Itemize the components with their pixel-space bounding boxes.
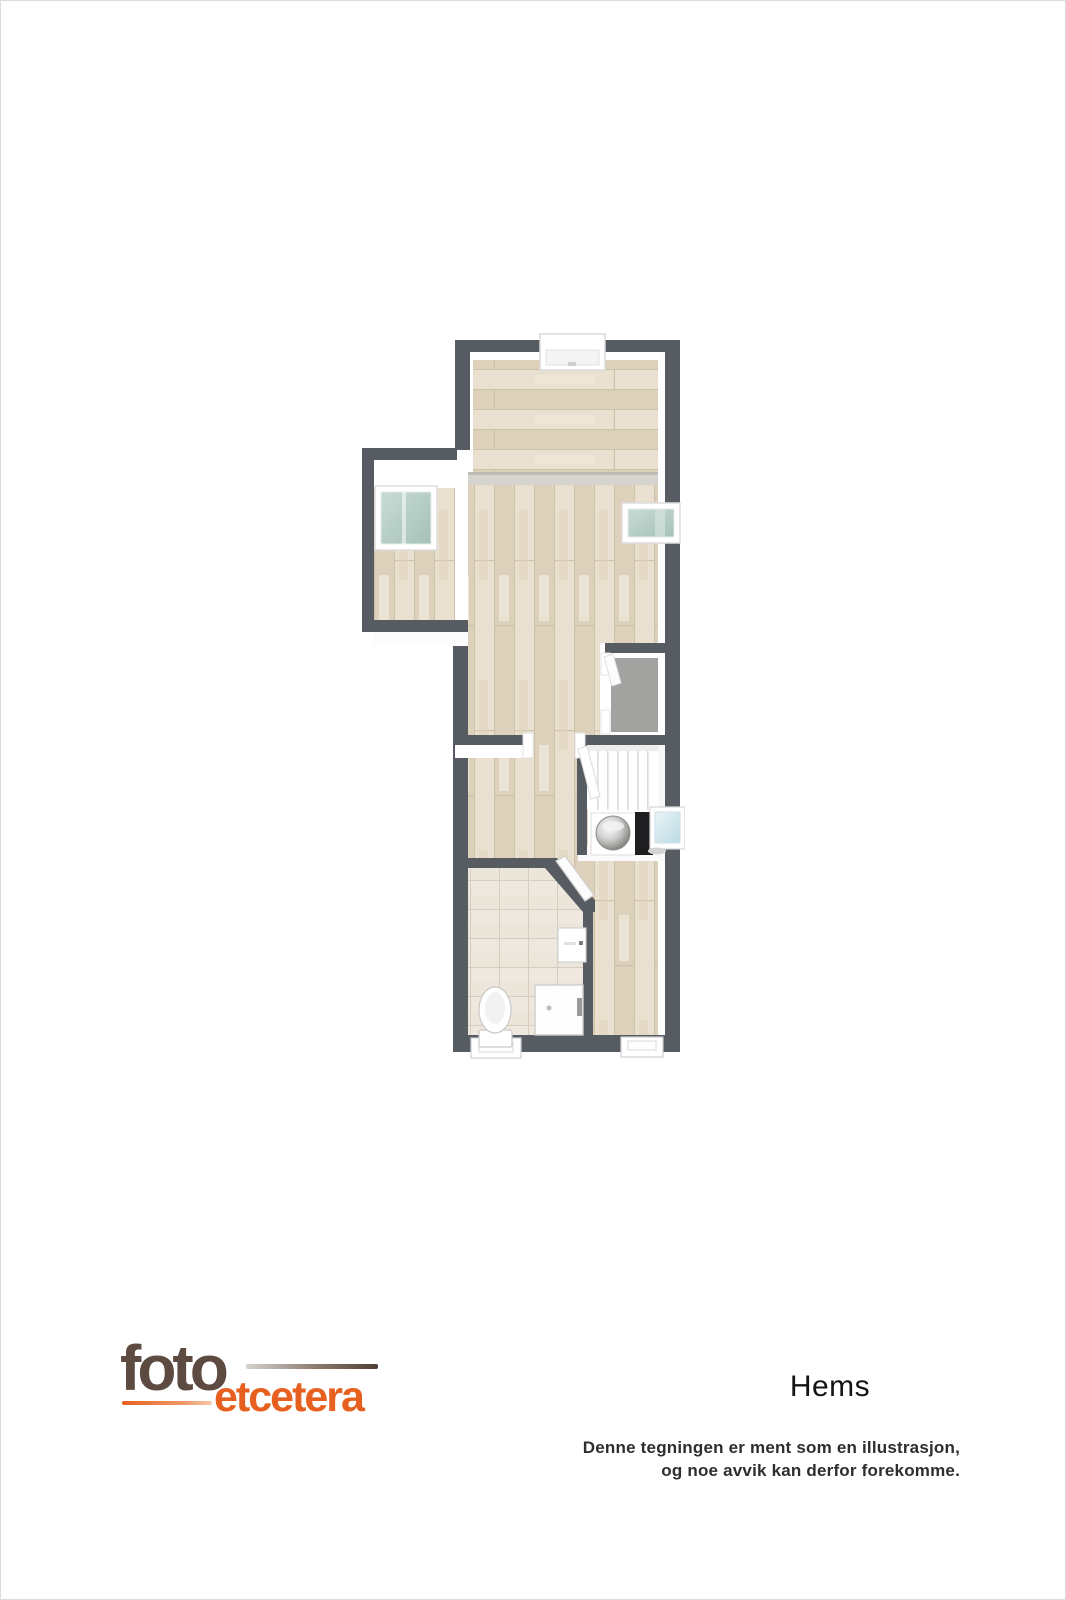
wall-bay-face	[374, 632, 468, 646]
disclaimer-line-2: og noe avvik kan derfor forekomme.	[518, 1459, 960, 1482]
shower-unit	[535, 985, 583, 1035]
wall-right	[665, 340, 680, 1052]
wall-bathroom-right	[583, 902, 593, 1035]
storage-jamb-bottom	[601, 710, 610, 734]
stair-top-shade	[587, 745, 658, 751]
logo-divider-line	[246, 1364, 378, 1369]
beam	[468, 475, 665, 485]
bottom-window-right	[621, 1037, 663, 1057]
logo-underline	[122, 1401, 212, 1405]
wall-stairwell-top	[577, 735, 665, 745]
wall-bay-left	[362, 448, 374, 632]
plan-title: Hems	[760, 1370, 900, 1404]
wall-cabinet	[558, 928, 586, 962]
under-stair-sink	[648, 807, 685, 855]
roof-window-left	[375, 486, 437, 550]
brand-logo: foto etcetera	[120, 1336, 390, 1426]
wall-left-lower	[453, 620, 468, 1052]
inner-wall-strip	[658, 352, 665, 643]
disclaimer-line-1: Denne tegningen er ment som en illustras…	[518, 1436, 960, 1459]
roof-window-right	[622, 503, 680, 543]
wall-hall	[455, 735, 530, 745]
water-heater-highlight	[602, 821, 624, 831]
toilet-seat	[485, 992, 505, 1024]
logo-text-foto: foto	[120, 1336, 225, 1400]
wall-bay-bottom	[362, 620, 468, 632]
wall-left-upper	[455, 340, 470, 450]
disclaimer: Denne tegningen er ment som en illustras…	[518, 1436, 960, 1482]
staircase	[587, 745, 658, 810]
wall-storage-top	[605, 643, 665, 653]
toilet	[479, 987, 512, 1047]
door-jamb-left	[523, 733, 533, 758]
wall-bay-top	[362, 448, 457, 460]
sink-drain	[648, 848, 666, 855]
page: foto etcetera Hems Denne tegningen er me…	[0, 0, 1066, 1600]
floor-top-room	[473, 360, 661, 472]
storage-room-carpet	[611, 658, 658, 732]
logo-text-etcetera: etcetera	[214, 1376, 363, 1419]
wall-bathroom-top	[455, 858, 545, 868]
dormer-window-top	[540, 334, 605, 370]
wall-hall-face	[455, 745, 530, 758]
beam-edge	[468, 472, 665, 475]
floor-plan	[355, 330, 685, 1060]
